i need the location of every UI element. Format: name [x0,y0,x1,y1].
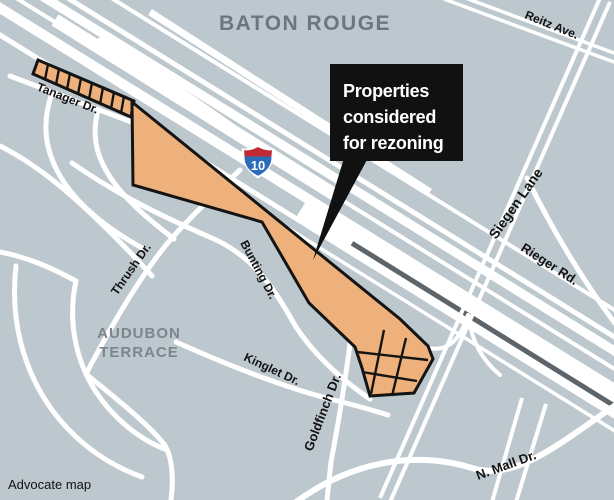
callout-line-1: Properties [343,81,429,101]
callout-line-3: for rezoning [343,133,443,153]
neighborhood-label-line2: TERRACE [99,344,179,361]
rezoning-locator-map: 10 Properties considered for rezoning BA… [0,0,614,500]
street-label-bunting: Bunting Dr. [237,238,280,302]
street-label-siegen: Siegen Lane [485,165,546,242]
shield-route-number: 10 [251,158,265,173]
map-credit: Advocate map [8,477,91,492]
neighborhood-label-line1: AUDUBON [97,325,181,342]
page-title: BATON ROUGE [219,12,391,35]
road-nmall [296,402,614,500]
street-label-reitz: Reitz Ave. [523,8,581,42]
callout-line-2: considered [343,107,436,127]
